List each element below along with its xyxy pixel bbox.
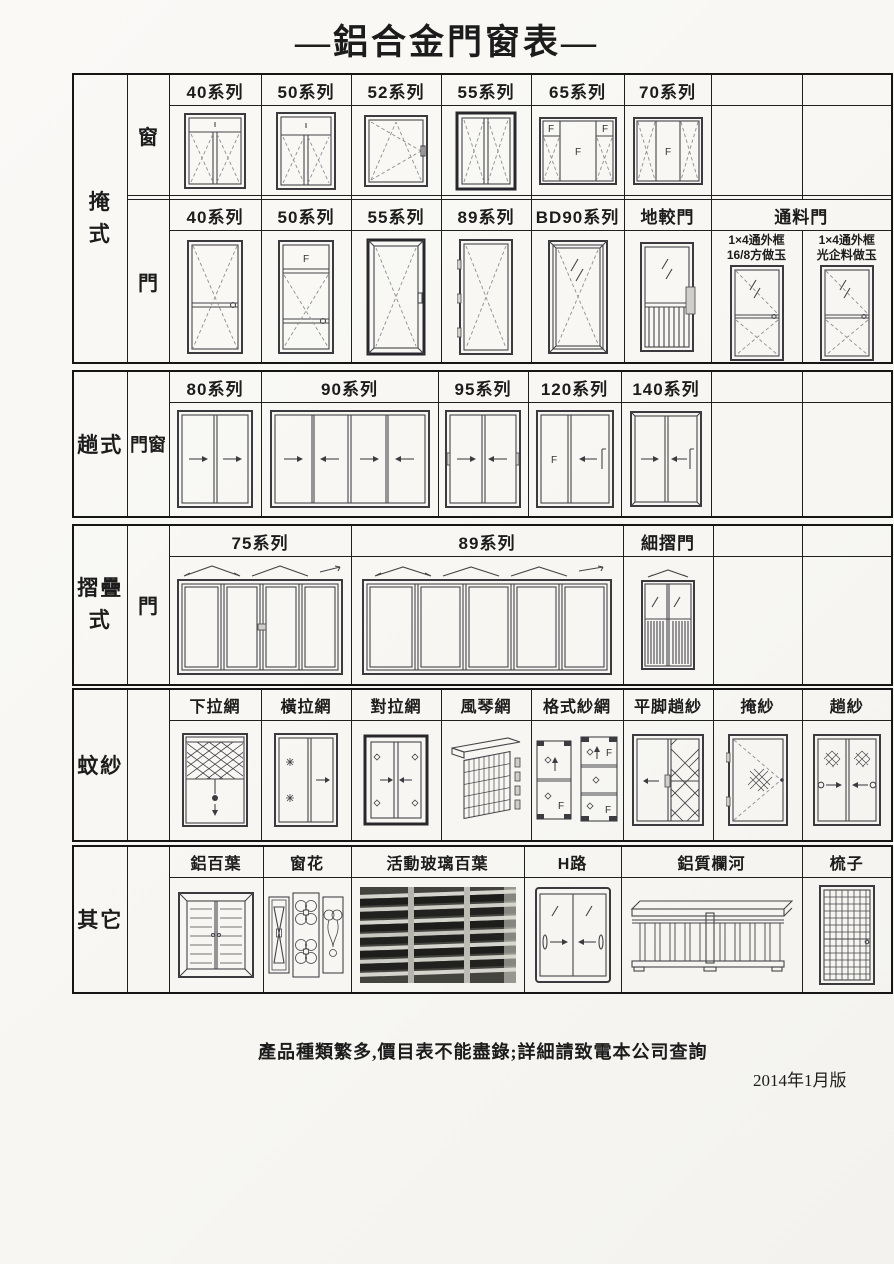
other-header: 窗花	[263, 846, 351, 878]
diagram-grid-screen-icon: F F F	[534, 733, 620, 827]
series-header: 75系列	[169, 525, 351, 557]
diagram-horizontal-screen-icon	[273, 732, 339, 828]
diagram-door-pass-1-icon	[729, 264, 785, 362]
cell-comb-door	[802, 878, 892, 993]
series-header: 89系列	[351, 525, 623, 557]
cell-aluminium-railing	[621, 878, 802, 993]
other-header: 鋁質欄河	[621, 846, 802, 878]
series-header: 50系列	[261, 74, 351, 106]
cell-screen-flat-slide	[623, 721, 713, 841]
empty-cell	[711, 106, 802, 196]
empty-header	[802, 525, 892, 557]
rowlabel-blank	[127, 689, 169, 841]
diagram-comb-door-icon	[818, 884, 876, 986]
other-header: 活動玻璃百葉	[351, 846, 524, 878]
svg-text:F: F	[547, 124, 553, 135]
cell-sliding-80	[169, 403, 261, 517]
diagram-sliding-screen-icon	[812, 733, 882, 827]
cell-screen-accordion	[441, 721, 531, 841]
svg-text:F: F	[550, 455, 556, 466]
empty-cell	[802, 557, 892, 685]
cell-door-89	[441, 231, 531, 364]
cell-window-65: F F F	[531, 106, 624, 196]
screen-header: 趟紗	[802, 689, 892, 721]
diagram-sliding-120-icon: F	[535, 409, 615, 509]
diagram-window-52-icon	[363, 114, 429, 188]
series-header: 89系列	[441, 200, 531, 231]
diagram-thin-fold-door-icon	[634, 567, 702, 673]
table-others: 其它 鋁百葉 窗花 活動玻璃百葉 H路 鋁質欄河 梳子	[72, 845, 893, 994]
category-folding: 摺疊式	[73, 525, 127, 685]
category-screens: 蚊紗	[73, 689, 127, 841]
series-header: 120系列	[528, 371, 621, 403]
category-sliding: 趟式	[73, 371, 127, 517]
cell-door-55	[351, 231, 441, 364]
screen-header: 對拉網	[351, 689, 441, 721]
cell-sliding-140	[621, 403, 711, 517]
cell-window-55	[441, 106, 531, 196]
diagram-accordion-screen-icon	[446, 732, 526, 828]
rowlabel-blank	[127, 846, 169, 993]
diagram-folding-75-icon	[174, 562, 346, 678]
empty-cell	[713, 557, 802, 685]
series-header: 40系列	[169, 74, 261, 106]
cell-screen-horizontal	[261, 721, 351, 841]
svg-text:F: F	[574, 147, 580, 158]
cell-window-40	[169, 106, 261, 196]
screen-header: 橫拉網	[261, 689, 351, 721]
cell-window-52	[351, 106, 441, 196]
series-header: 65系列	[531, 74, 624, 106]
cell-screen-sliding	[802, 721, 892, 841]
table-sliding: 趟式 門窗 80系列 90系列 95系列 120系列 140系列	[72, 370, 893, 518]
scanned-catalog-page: —鋁合金門窗表— 掩式 窗 40系列 50系列 52系列 55系列 65系列 7…	[0, 0, 894, 1264]
diagram-door-89-icon	[457, 238, 515, 356]
cell-screen-grid: F F F	[531, 721, 623, 841]
diagram-door-pass-2-icon	[819, 264, 875, 362]
rowlabel-door-window: 門窗	[127, 371, 169, 517]
empty-cell	[802, 106, 892, 196]
series-header: 55系列	[441, 74, 531, 106]
pass-door-caption: 1×4通外框 光企料做玉	[803, 233, 892, 263]
svg-text:F: F	[664, 147, 670, 158]
other-header: 梳子	[802, 846, 892, 878]
svg-text:F: F	[605, 805, 611, 816]
other-header: H路	[524, 846, 621, 878]
cell-folding-thin	[623, 557, 713, 685]
cell-door-pass-2: 1×4通外框 光企料做玉	[802, 231, 892, 364]
cell-folding-75	[169, 557, 351, 685]
page-title: —鋁合金門窗表—	[0, 14, 894, 65]
diagram-flat-sliding-screen-icon	[631, 733, 705, 827]
series-header: 地較門	[624, 200, 711, 231]
cell-door-40	[169, 231, 261, 364]
svg-text:F: F	[601, 124, 607, 135]
diagram-door-bd90-icon	[547, 239, 609, 355]
cell-window-grille	[263, 878, 351, 993]
series-header: BD90系列	[531, 200, 624, 231]
diagram-window-40-icon	[183, 112, 247, 190]
svg-text:F: F	[606, 748, 612, 759]
diagram-window-65-icon: F F F	[538, 116, 618, 186]
table-folding: 摺疊式 門 75系列 89系列 細摺門	[72, 524, 893, 686]
screen-header: 掩紗	[713, 689, 802, 721]
empty-header	[802, 371, 892, 403]
screen-header: 下拉網	[169, 689, 261, 721]
version-label: 2014年1月版	[753, 1066, 847, 1091]
series-header: 70系列	[624, 74, 711, 106]
empty-cell	[711, 403, 802, 517]
svg-text:F: F	[558, 801, 564, 812]
series-header: 95系列	[438, 371, 528, 403]
series-header-pass-door: 通料門	[711, 200, 892, 231]
rowlabel-window: 窗	[127, 74, 169, 196]
diagram-window-grille-icon	[265, 887, 349, 983]
cell-movable-glass-louver	[351, 878, 524, 993]
cell-screen-opposed	[351, 721, 441, 841]
series-header: 細摺門	[623, 525, 713, 557]
diagram-aluminium-railing-icon	[624, 891, 800, 979]
cell-sliding-95	[438, 403, 528, 517]
diagram-door-floor-hinge-icon	[639, 241, 697, 353]
cell-window-50	[261, 106, 351, 196]
cell-door-50: F	[261, 231, 351, 364]
category-casement: 掩式	[73, 74, 127, 363]
cell-h-road	[524, 878, 621, 993]
diagram-movable-glass-louver-photo	[358, 885, 518, 985]
series-header: 80系列	[169, 371, 261, 403]
diagram-door-40-icon	[186, 239, 244, 355]
screen-header: 風琴網	[441, 689, 531, 721]
category-others: 其它	[73, 846, 127, 993]
diagram-door-55-icon	[366, 238, 426, 356]
cell-window-70: F	[624, 106, 711, 196]
diagram-folding-89-icon	[359, 562, 615, 678]
diagram-pulldown-screen-icon	[181, 732, 249, 828]
cell-folding-89	[351, 557, 623, 685]
cell-aluminium-louver	[169, 878, 263, 993]
footer-note: 產品種類繁多,價目表不能盡錄;詳細請致電本公司查詢	[258, 1038, 708, 1064]
table-casement: 掩式 窗 40系列 50系列 52系列 55系列 65系列 70系列	[72, 73, 893, 364]
other-header: 鋁百葉	[169, 846, 263, 878]
rowlabel-door: 門	[127, 525, 169, 685]
series-header: 140系列	[621, 371, 711, 403]
series-header: 55系列	[351, 200, 441, 231]
diagram-sliding-90-icon	[269, 409, 431, 509]
empty-header	[711, 371, 802, 403]
series-header: 90系列	[261, 371, 438, 403]
empty-cell	[802, 403, 892, 517]
pass-door-caption: 1×4通外框 16/8方做玉	[712, 233, 802, 263]
cell-door-pass-1: 1×4通外框 16/8方做玉	[711, 231, 802, 364]
diagram-h-road-door-icon	[534, 886, 612, 984]
empty-header	[802, 74, 892, 106]
diagram-aluminium-louver-icon	[177, 891, 255, 979]
screen-header: 平脚趟紗	[623, 689, 713, 721]
empty-header	[713, 525, 802, 557]
series-header: 40系列	[169, 200, 261, 231]
screen-header: 格式紗網	[531, 689, 623, 721]
diagram-hinged-screen-icon	[726, 733, 790, 827]
diagram-sliding-95-icon	[444, 409, 522, 509]
cell-sliding-90	[261, 403, 438, 517]
cell-screen-pulldown	[169, 721, 261, 841]
cell-sliding-120: F	[528, 403, 621, 517]
diagram-sliding-80-icon	[176, 409, 254, 509]
diagram-window-50-icon	[275, 111, 337, 191]
diagram-window-55-icon	[455, 111, 517, 191]
cell-door-bd90	[531, 231, 624, 364]
svg-text:F: F	[303, 254, 309, 265]
table-screens: 蚊紗 下拉網 橫拉網 對拉網 風琴網 格式紗網 平脚趟紗 掩紗 趟紗	[72, 688, 893, 842]
diagram-window-70-icon: F	[632, 116, 704, 186]
series-header: 50系列	[261, 200, 351, 231]
diagram-opposed-screen-icon	[363, 734, 429, 826]
diagram-sliding-140-icon	[629, 410, 703, 508]
diagram-door-50-icon: F	[277, 239, 335, 355]
rowlabel-door: 門	[127, 200, 169, 364]
series-header: 52系列	[351, 74, 441, 106]
cell-screen-hinged	[713, 721, 802, 841]
empty-header	[711, 74, 802, 106]
cell-door-floor	[624, 231, 711, 364]
